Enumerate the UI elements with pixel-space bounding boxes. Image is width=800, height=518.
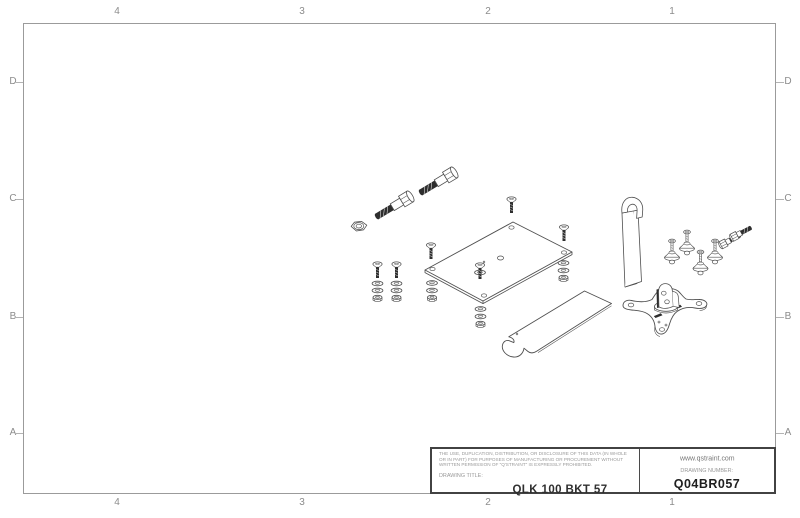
fastener-stack-2 [391, 262, 402, 302]
hook-bracket [622, 197, 643, 287]
drawing-title-label: DRAWING TITLE: [439, 472, 572, 478]
cone-washer-screw-1 [665, 239, 680, 264]
drawing-number: Q04BR057 [674, 477, 741, 491]
title-block-right-cell: www.qstraint.com DRAWING NUMBER: Q04BR05… [639, 449, 774, 492]
drawing-sheet: 4 3 2 1 4 3 2 1 D C B A D C B A [0, 0, 800, 518]
cone-washer-screw-2 [680, 230, 695, 255]
docking-base-bracket [623, 284, 707, 337]
washer-stack-bottom [475, 307, 486, 328]
exploded-view-drawing [0, 0, 800, 518]
clevis-tab [657, 284, 680, 309]
drawing-title: QLK 100 BKT 57 [439, 484, 635, 496]
legal-notice: THE USE, DUPLICATION, DISTRIBUTION, OR D… [439, 451, 635, 468]
plate-screw-left [426, 243, 435, 259]
hex-bolt-small-2 [729, 224, 754, 242]
hex-bolt-large-1 [372, 190, 415, 223]
mounting-plate [425, 222, 572, 304]
support-plate [502, 291, 611, 357]
fastener-stack-1 [372, 262, 383, 302]
hex-nut [351, 221, 367, 231]
title-block-left-cell: THE USE, DUPLICATION, DISTRIBUTION, OR D… [432, 449, 639, 492]
drawing-number-label: DRAWING NUMBER: [681, 467, 734, 473]
title-block: THE USE, DUPLICATION, DISTRIBUTION, OR D… [430, 447, 776, 494]
cone-washer-screw-3 [693, 250, 708, 275]
website-text: www.qstraint.com [680, 454, 735, 462]
plate-screw-right [559, 225, 568, 241]
washer-stack-right [558, 261, 569, 282]
plate-screw-top [507, 197, 516, 213]
washer-stack-left [427, 281, 438, 302]
hex-bolt-large-2 [416, 166, 459, 199]
